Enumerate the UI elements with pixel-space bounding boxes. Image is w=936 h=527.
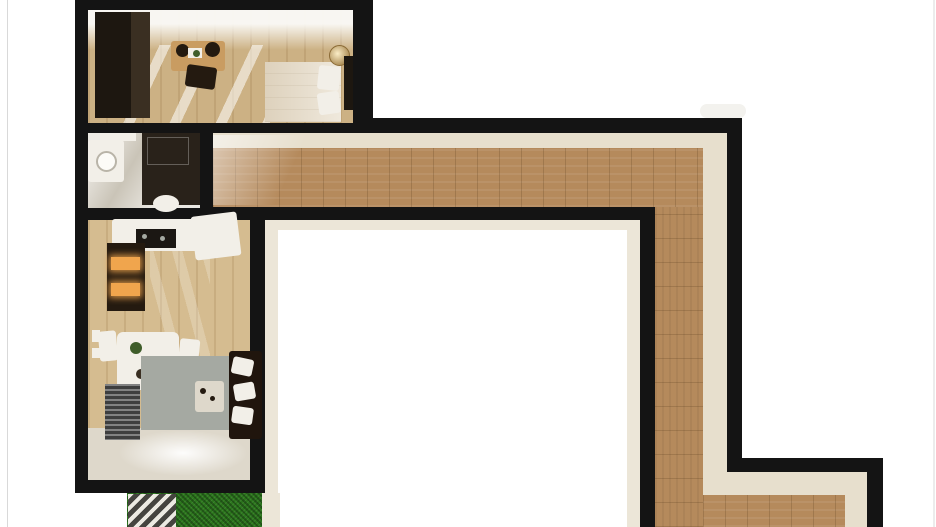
corridor-wall-east-outer: [727, 133, 742, 460]
bed-pillow-top: [317, 65, 341, 91]
corridor-wall-north: [373, 118, 742, 133]
bed-pillow-bottom: [317, 91, 342, 116]
bathroom-wall-east: [200, 133, 213, 208]
bedroom-wall-east: [353, 10, 373, 123]
bedroom-wall-south: [88, 123, 373, 133]
wall-corner-shadow: [700, 104, 746, 118]
kitchen-wall-east: [250, 220, 265, 480]
balcony-right-face: [262, 493, 280, 527]
tall-cabinet: [107, 243, 145, 311]
corridor-southeast-wall-face: [703, 472, 867, 495]
fridge: [190, 211, 241, 260]
cooktop-burner-left: [142, 234, 147, 239]
core-top-face: [265, 220, 627, 230]
bedroom-wall-unit: [344, 56, 353, 110]
corridor-wall-inner-horizontal: [213, 207, 655, 220]
outer-wall-west: [75, 0, 88, 493]
table-plant: [130, 342, 142, 354]
sofa-pillow-bottom: [231, 406, 254, 426]
corridor-southeast-right-face: [845, 495, 867, 527]
corridor-floor-vertical: [655, 207, 703, 527]
corridor-east-wall-face: [703, 133, 727, 472]
corridor-floor-southeast: [703, 495, 845, 527]
wall-mark-bottom: [92, 348, 100, 358]
corridor-wall-inner-vertical: [640, 220, 655, 527]
cooktop-burner-right: [160, 236, 165, 241]
corridor-wall-far-east: [867, 472, 883, 527]
cabinet-shelf-light-bottom: [111, 283, 140, 296]
living-wall-south: [75, 480, 265, 493]
desk-chair: [185, 64, 218, 90]
coffee-table-item-bottom: [210, 396, 215, 401]
striped-doormat: [128, 494, 176, 527]
floor-plan-render: [0, 0, 936, 527]
bedroom-wall-north: [88, 0, 373, 10]
right-edge-line: [933, 0, 935, 527]
coffee-table-item-top: [200, 388, 206, 394]
radiator: [105, 384, 140, 440]
shower: [147, 137, 189, 165]
hallway-light: [213, 135, 338, 205]
desk-stool-right: [205, 42, 220, 57]
sink-bowl: [96, 151, 117, 172]
wardrobe-door-edge: [131, 12, 150, 118]
left-edge-line: [7, 0, 8, 527]
corridor-wall-south-outer: [727, 458, 883, 472]
sofa-pillow-middle: [233, 381, 257, 401]
toilet: [153, 195, 179, 212]
dining-chair-left: [98, 330, 119, 361]
desk-plant: [193, 50, 200, 57]
wall-mark-top: [92, 330, 100, 342]
cabinet-shelf-light-top: [111, 257, 140, 270]
core-left-face: [265, 230, 278, 527]
corridor-west-wall-face: [627, 220, 640, 527]
